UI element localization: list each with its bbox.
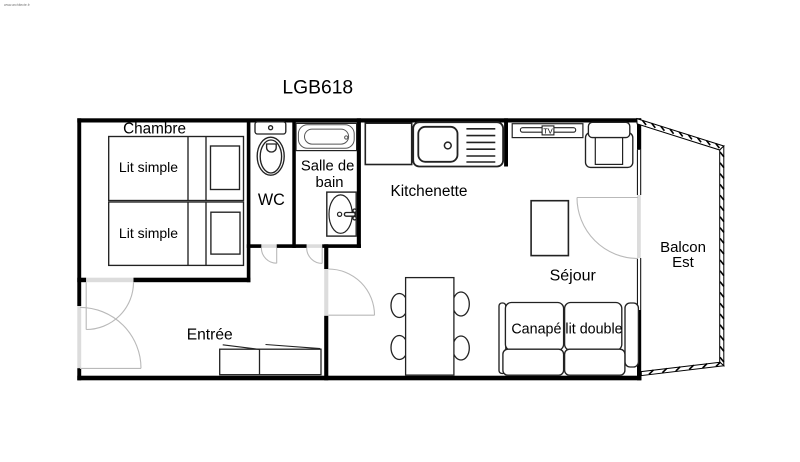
svg-text:Est: Est bbox=[672, 254, 695, 271]
svg-text:WC: WC bbox=[258, 191, 285, 209]
svg-text:Entrée: Entrée bbox=[187, 327, 233, 344]
svg-text:Chambre: Chambre bbox=[123, 120, 186, 137]
svg-text:www.architecte.fr: www.architecte.fr bbox=[4, 3, 31, 7]
svg-text:Canapé lit double: Canapé lit double bbox=[511, 322, 622, 338]
svg-text:Lit simple: Lit simple bbox=[119, 159, 178, 175]
svg-text:Séjour: Séjour bbox=[550, 267, 597, 284]
svg-text:TV: TV bbox=[543, 126, 553, 135]
svg-text:Lit simple: Lit simple bbox=[119, 225, 178, 241]
svg-text:bain: bain bbox=[316, 175, 344, 191]
svg-text:Salle de: Salle de bbox=[301, 159, 354, 175]
svg-text:Kitchenette: Kitchenette bbox=[390, 183, 467, 200]
svg-text:LGB618: LGB618 bbox=[282, 78, 353, 99]
